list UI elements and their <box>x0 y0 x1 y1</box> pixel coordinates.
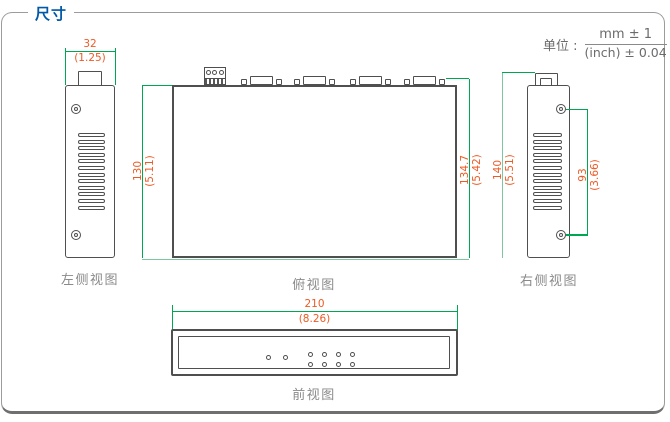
led-indicator-icon <box>308 352 313 357</box>
terminal-pin-icon <box>212 70 217 75</box>
led-indicator-icon <box>336 362 341 367</box>
led-indicator-icon <box>350 352 355 357</box>
dim-top-depth-overall-mm: 134.7 <box>460 155 471 185</box>
vent-slot-icon <box>78 159 105 163</box>
terminal-pin-icon <box>219 70 224 75</box>
vent-slot-icon <box>78 186 105 190</box>
dim-extension-line <box>142 85 172 86</box>
dim-front-width-inch: (8.26) <box>172 314 457 325</box>
vent-slot-icon <box>78 173 105 177</box>
led-indicator-icon <box>266 355 271 360</box>
units-fraction: mm ± 1 (inch) ± 0.04 <box>585 28 667 60</box>
terminal-pins <box>205 70 225 75</box>
led-indicator-icon <box>350 362 355 367</box>
screw-hole-icon <box>71 230 81 240</box>
screw-hole-icon <box>556 230 566 240</box>
vent-slot-icon <box>78 146 105 150</box>
vent-slot-icon <box>533 199 562 203</box>
led-indicator-icon <box>322 362 327 367</box>
vent-slot-icon <box>533 166 562 170</box>
dim-top-depth-overall-inch: (5.42) <box>472 154 483 186</box>
led-indicator-icon <box>283 355 288 360</box>
dim-extension-line <box>142 259 469 260</box>
dim-front-width-line <box>172 311 457 313</box>
led-indicator-icon <box>322 352 327 357</box>
view-label-right-side: 右侧视图 <box>520 270 578 289</box>
terminal-pin-icon <box>206 70 211 75</box>
front-panel <box>178 336 450 369</box>
vent-slot-icon <box>78 192 105 196</box>
dim-left-width-inch: (1.25) <box>65 53 115 64</box>
vent-slot-icon <box>78 206 105 210</box>
dim-screw-span-leader <box>566 234 588 236</box>
vent-slot-icon <box>533 173 562 177</box>
screw-hole-icon <box>71 104 81 114</box>
vent-slot-icon <box>78 153 105 157</box>
view-label-front: 前视图 <box>292 384 336 403</box>
vent-slot-icon <box>533 140 562 144</box>
view-label-top: 俯视图 <box>292 274 336 293</box>
units-inch: (inch) ± 0.04 <box>585 45 667 60</box>
units-mm: mm ± 1 <box>585 28 667 45</box>
dim-right-height-mm: 140 <box>493 160 504 180</box>
units-note: 单位 : mm ± 1 (inch) ± 0.04 <box>543 28 667 60</box>
vent-slot-icon <box>533 186 562 190</box>
vent-slot-icon <box>533 206 562 210</box>
dim-screw-span-mm: 93 <box>578 168 589 181</box>
dim-left-width-mm: 32 <box>65 39 115 50</box>
vent-slot-icon <box>78 199 105 203</box>
dim-screw-span-inch: (3.66) <box>590 159 601 191</box>
vga-connector-icon <box>413 76 436 85</box>
top-view-outline <box>172 85 457 258</box>
dim-right-height-inch: (5.51) <box>505 154 516 186</box>
units-label: 单位 : <box>543 35 578 54</box>
left-vent-slots <box>78 133 105 212</box>
left-view-connector-tab <box>78 71 102 86</box>
dim-screw-span-leader <box>566 109 588 111</box>
dim-extension-line <box>446 78 469 79</box>
terminal-block-hatch <box>205 78 225 84</box>
view-label-left-side: 左侧视图 <box>61 269 119 288</box>
vent-slot-icon <box>533 179 562 183</box>
terminal-block-icon <box>204 67 226 85</box>
vent-slot-icon <box>78 133 105 137</box>
dim-extension-line <box>502 72 535 73</box>
right-vent-slots <box>533 133 562 212</box>
vent-slot-icon <box>533 192 562 196</box>
led-indicator-icon <box>336 352 341 357</box>
dim-front-width-mm: 210 <box>172 299 457 310</box>
vga-connector-icon <box>303 76 326 85</box>
screw-hole-icon <box>556 104 566 114</box>
page-title: 尺寸 <box>28 3 74 24</box>
vent-slot-icon <box>533 159 562 163</box>
dimension-diagram: 尺寸 单位 : mm ± 1 (inch) ± 0.04 32 (1.25) 左… <box>0 0 670 422</box>
dim-top-depth-inch: (5.11) <box>145 155 156 187</box>
vga-connector-icon <box>250 76 273 85</box>
led-indicator-icon <box>308 362 313 367</box>
vent-slot-icon <box>533 153 562 157</box>
vent-slot-icon <box>78 140 105 144</box>
vent-slot-icon <box>533 133 562 137</box>
vent-slot-icon <box>78 166 105 170</box>
vga-connector-icon <box>359 76 382 85</box>
dim-top-depth-mm: 130 <box>133 161 144 181</box>
vent-slot-icon <box>78 179 105 183</box>
vent-slot-icon <box>533 146 562 150</box>
